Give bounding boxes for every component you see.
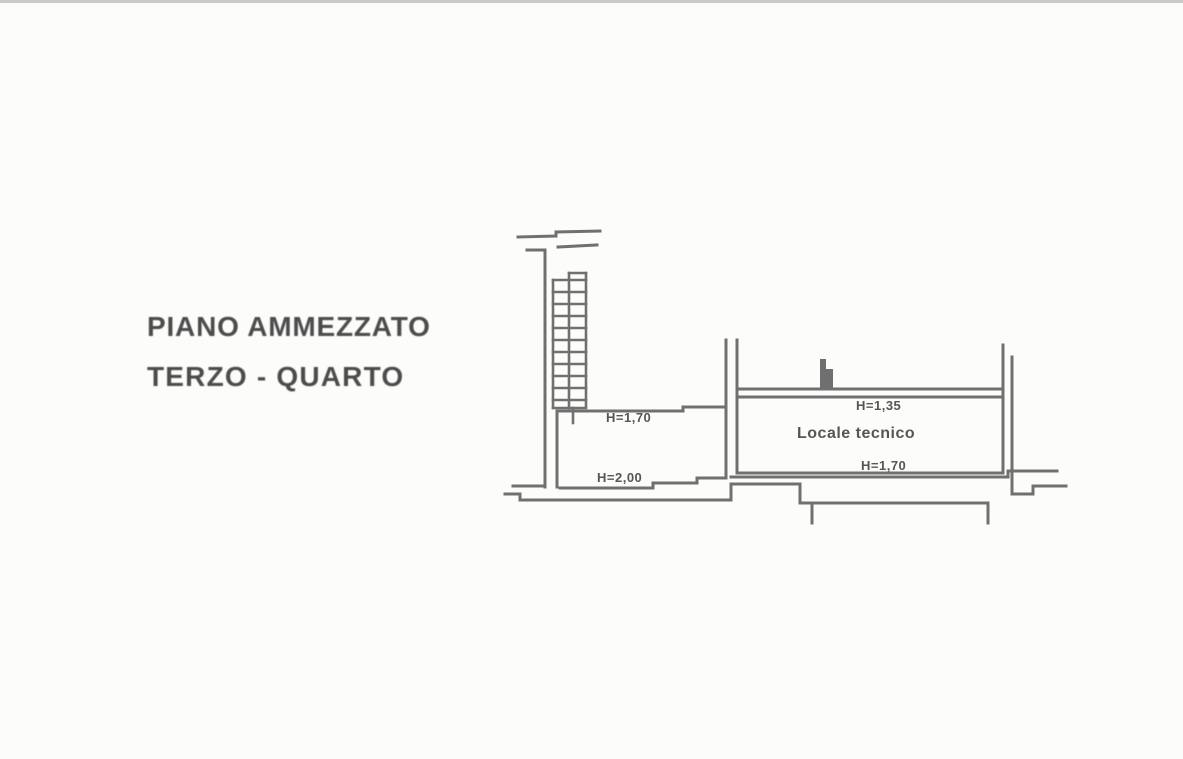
floor-plan-drawing: H=1,70 H=2,00 H=1,35 Locale tecnico H=1,… bbox=[0, 0, 1183, 759]
floor-plan-linework bbox=[0, 0, 1183, 759]
height-label-room-upper: H=1,35 bbox=[856, 398, 901, 413]
scanned-floor-plan-page: PIANO AMMEZZATO TERZO - QUARTO bbox=[0, 0, 1183, 759]
height-line-200 bbox=[560, 478, 726, 488]
height-label-mezzanine-upper: H=1,70 bbox=[606, 410, 651, 425]
room-name-label: Locale tecnico bbox=[797, 425, 915, 443]
outer-boundary bbox=[505, 484, 988, 523]
height-label-room-lower: H=1,70 bbox=[861, 458, 906, 473]
staircase bbox=[553, 273, 586, 423]
height-label-mezzanine-lower: H=2,00 bbox=[597, 470, 642, 485]
upper-wall-fragments bbox=[518, 231, 600, 250]
partition-wall bbox=[726, 340, 737, 477]
left-wall bbox=[513, 250, 557, 487]
chimney bbox=[820, 359, 833, 389]
